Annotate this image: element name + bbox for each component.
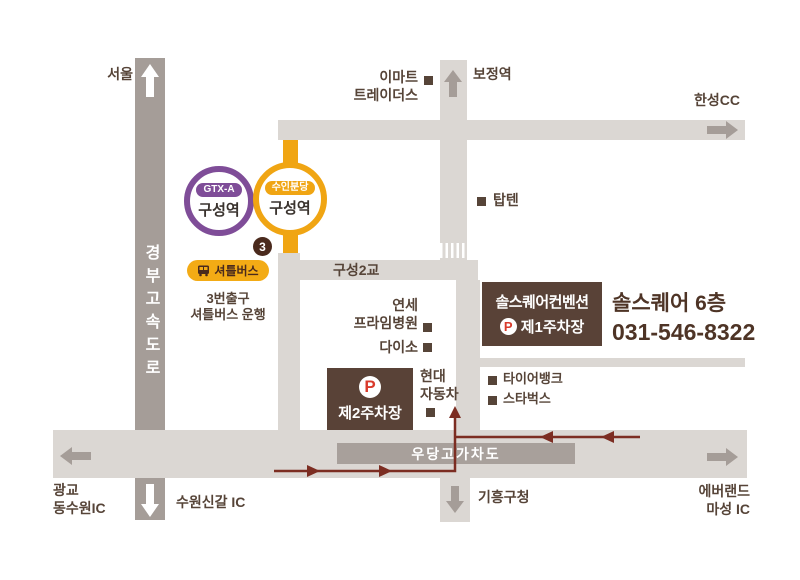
gtx-line-badge: GTX-A [196,183,241,197]
shuttle-bus-pill: 셔틀버스 [187,260,269,281]
shuttle-note-line2: 셔틀버스 운행 [172,307,284,323]
shuttle-label: 셔틀버스 [214,262,258,279]
label-bojeong: 보정역 [473,66,512,84]
suin-station-name: 구성역 [269,197,310,218]
road-bottom-stub [440,478,470,522]
station-suin-guseong: 수인분당 구성역 [253,162,327,236]
marker-topten [477,197,486,206]
label-daiso: 다이소 [322,339,418,357]
label-yonsei-line2: 프라임병원 [322,315,418,333]
label-everland-line1: 에버랜드 [650,483,750,501]
expressway-label: 경부고속도로 [135,218,165,408]
parking1-p-icon: P [500,318,517,335]
label-tirebank: 타이어뱅크 [503,371,563,387]
venue-box: 솔스퀘어컨벤션 P 제1주차장 [482,282,602,346]
exit-3-badge: 3 [253,237,272,256]
road-top-horizontal [278,120,745,140]
shuttle-note: 3번출구 셔틀버스 운행 [172,291,284,324]
venue-floor: 솔스퀘어 6층 [612,291,755,317]
label-gwanggyo-line1: 광교 [53,482,106,500]
marker-starbucks [488,396,497,405]
label-yonsei-line1: 연세 [322,297,418,315]
parking2-box: P 제2주차장 [327,368,413,430]
location-map: 경부고속도로 우당고가차도 GTX-A 구성역 수인분당 구성역 3 셔틀버스 … [0,0,800,580]
parking2-label: 제2주차장 [338,402,402,423]
shuttle-note-line1: 3번출구 [172,291,284,307]
road-guseong-bridge [300,260,478,280]
label-suwon-singal: 수원신갈 IC [176,494,245,512]
road-left-vertical [278,253,300,430]
parking2-p-icon: P [359,376,381,398]
venue-parking1-label: 제1주차장 [521,316,585,337]
label-seoul: 서울 [90,66,133,84]
marker-emart [424,76,433,85]
road-thin-east [478,358,745,367]
label-everland-line2: 마성 IC [650,501,750,519]
label-hyundai: 현대 자동차 [420,368,459,403]
marker-hyundai [426,408,435,417]
suin-line-badge: 수인분당 [265,181,316,195]
gtx-station-name: 구성역 [198,199,239,220]
label-gwanggyo-line2: 동수원IC [53,500,106,518]
overpass-label: 우당고가차도 [411,444,500,464]
label-hyundai-line2: 자동차 [420,386,459,404]
label-bridge: 구성2교 [333,262,379,280]
label-emart: 이마트 트레이더스 [320,69,418,104]
label-emart-line1: 이마트 [320,69,418,87]
marker-daiso [423,343,432,352]
label-topten: 탑텐 [493,192,519,210]
station-gtx-guseong: GTX-A 구성역 [184,166,254,236]
road-right-vertical-south [456,280,480,430]
bus-icon [197,264,210,277]
label-hanseong-cc: 한성CC [694,92,740,110]
venue-info: 솔스퀘어 6층 031-546-8322 [612,291,755,347]
marker-yonsei [423,323,432,332]
label-gwanggyo: 광교 동수원IC [53,482,106,517]
label-giheung: 기흥구청 [478,489,530,507]
venue-phone: 031-546-8322 [612,318,755,347]
label-everland: 에버랜드 마성 IC [650,483,750,518]
label-starbucks: 스타벅스 [503,391,551,407]
label-emart-line2: 트레이더스 [320,87,418,105]
label-yonsei: 연세 프라임병원 [322,297,418,332]
label-hyundai-line1: 현대 [420,368,459,386]
marker-tirebank [488,376,497,385]
overpass-box: 우당고가차도 [337,443,575,464]
crosswalk [440,243,467,258]
venue-title: 솔스퀘어컨벤션 [495,291,588,312]
